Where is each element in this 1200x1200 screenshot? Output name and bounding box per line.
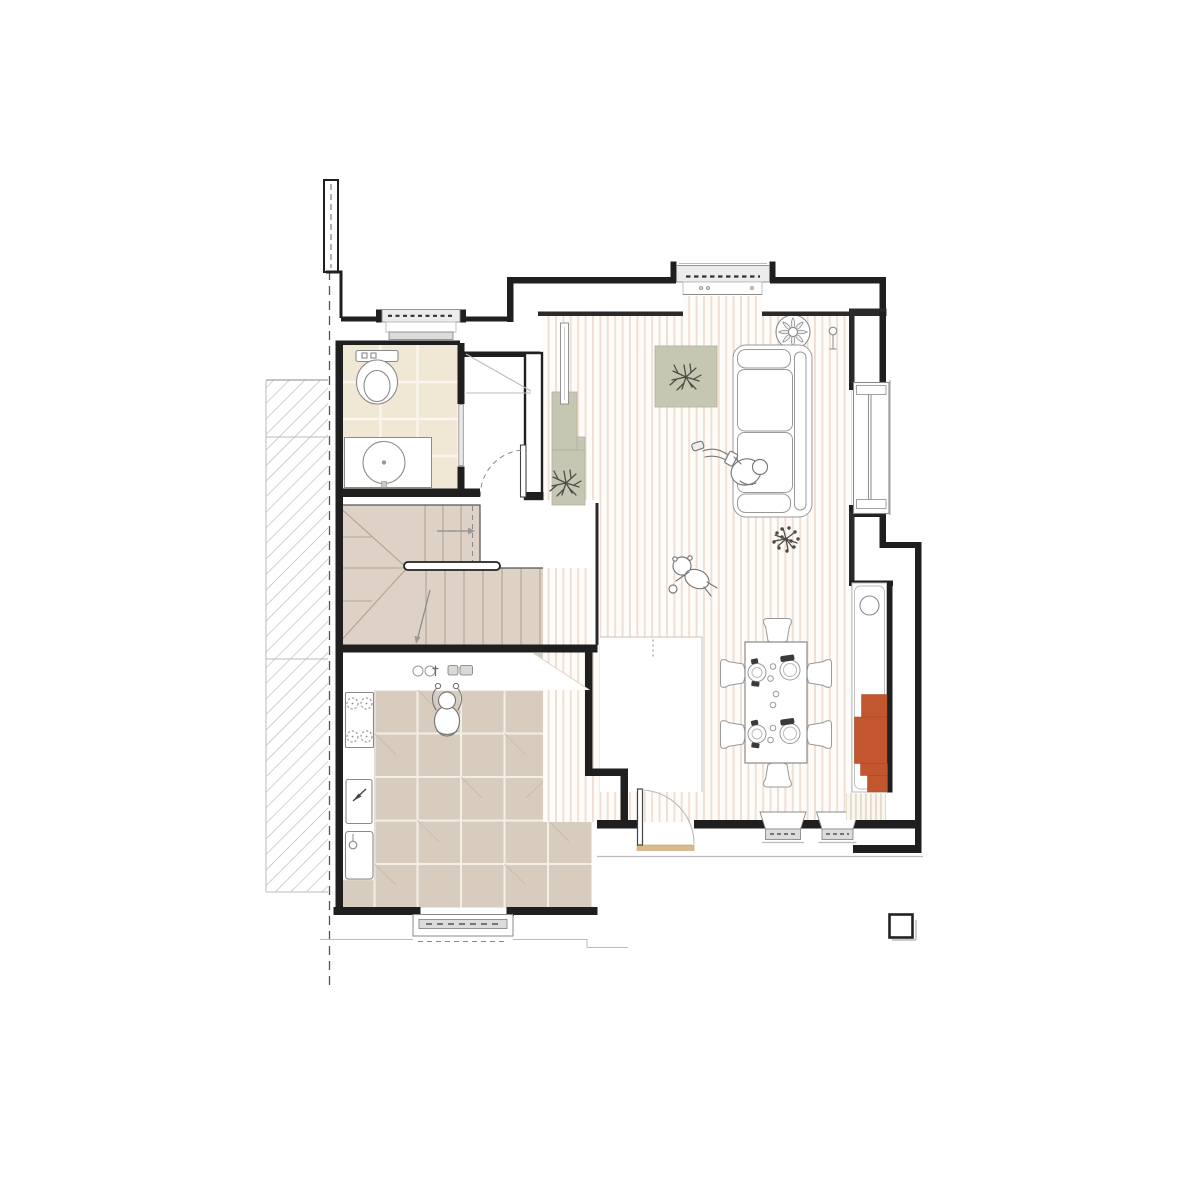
patio-post-icon [890, 915, 917, 941]
bathroom-window [376, 310, 466, 340]
kitchen-sink-icon [346, 832, 374, 880]
bathroom-door [459, 405, 464, 466]
hall-door [480, 445, 526, 497]
handrail-icon [404, 562, 500, 570]
sofa-icon [733, 345, 812, 517]
floor-plan-canvas [0, 0, 1200, 1200]
washbasin-icon [345, 438, 432, 488]
stove-icon [346, 693, 374, 748]
living-room-north-window [671, 262, 776, 295]
kitchen-window [413, 915, 513, 942]
cutting-board-icon [346, 780, 372, 824]
striped-mat-icon [846, 794, 886, 821]
ceiling-fan-icon [776, 315, 810, 349]
toilet-icon [356, 351, 398, 405]
wall-stub [324, 180, 341, 318]
floor-plan-drawing [0, 0, 1200, 1200]
niche-sink-icon [860, 596, 879, 615]
neighbor-building-hatch [266, 380, 328, 892]
niche-counter [846, 583, 888, 820]
hall-closet [466, 354, 531, 393]
living-room-east-window [854, 380, 891, 515]
living-room-south-window-1 [760, 812, 806, 843]
